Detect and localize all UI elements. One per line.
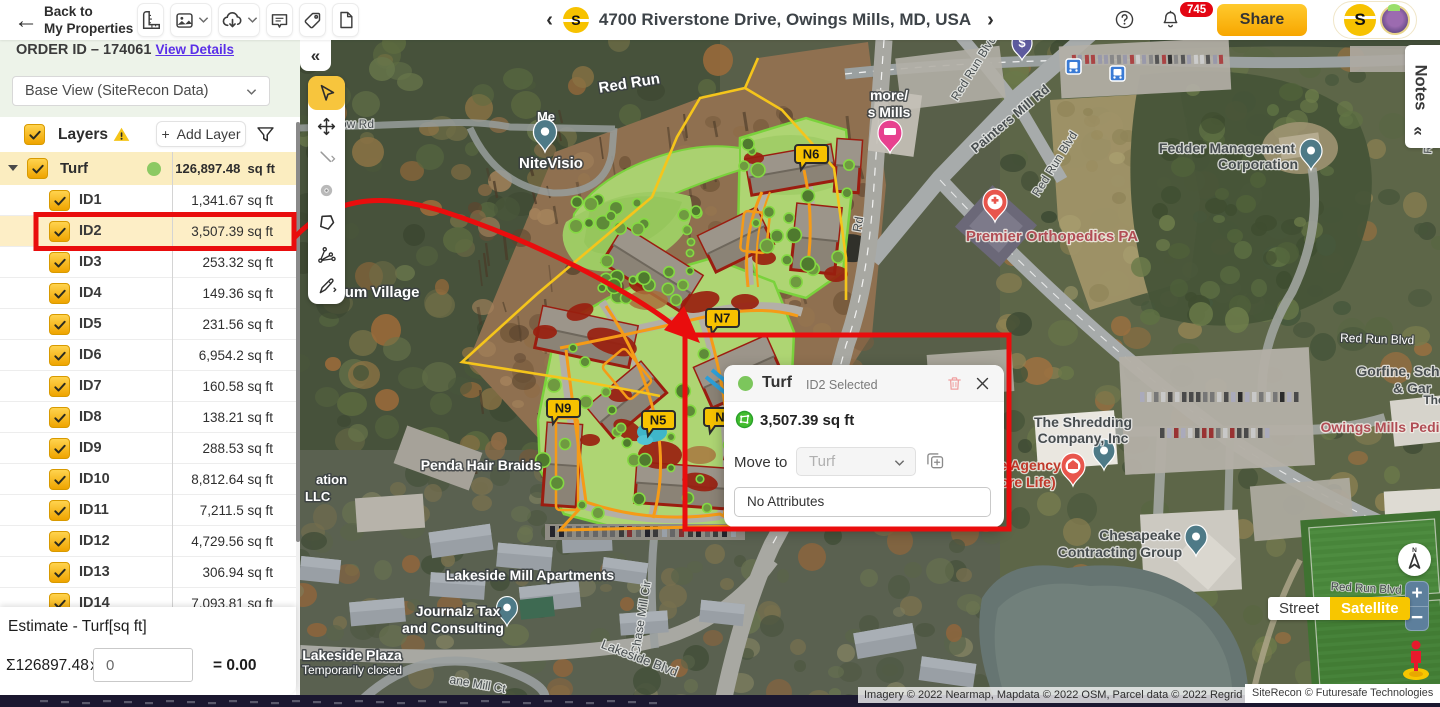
svg-text:ore Life): ore Life)	[1000, 474, 1055, 490]
svg-text:LLC: LLC	[305, 489, 331, 504]
svg-text:Gorfine, Sch: Gorfine, Sch	[1356, 363, 1439, 379]
svg-text:Rd: Rd	[850, 216, 866, 234]
svg-text:NiteVisio: NiteVisio	[519, 155, 583, 172]
svg-text:Company, Inc: Company, Inc	[1038, 430, 1129, 446]
svg-text:The: The	[1423, 393, 1440, 407]
svg-text:Lakeside Mill Apartments: Lakeside Mill Apartments	[446, 567, 615, 583]
svg-text:N7: N7	[714, 311, 731, 326]
svg-text:N6: N6	[803, 147, 820, 162]
svg-text:Penda Hair Braids: Penda Hair Braids	[421, 457, 542, 473]
svg-text:N: N	[1412, 547, 1417, 554]
svg-text:ium Village: ium Village	[341, 284, 420, 301]
svg-text:s Mills: s Mills	[868, 104, 911, 120]
svg-text:Premier Orthopedics PA: Premier Orthopedics PA	[966, 228, 1138, 245]
svg-text:ow Rd: ow Rd	[340, 117, 374, 131]
svg-text:Lakeside Plaza: Lakeside Plaza	[302, 647, 402, 663]
svg-text:N5: N5	[650, 413, 667, 428]
svg-text:Corporation: Corporation	[1218, 156, 1298, 172]
svg-text:Journalz Tax: Journalz Tax	[416, 603, 501, 619]
svg-text:more/: more/	[870, 87, 908, 103]
svg-text:e Agency: e Agency	[999, 457, 1061, 473]
svg-text:N9: N9	[555, 401, 572, 416]
svg-text:and Consulting: and Consulting	[402, 620, 504, 636]
svg-text:Owings Mills Pedi: Owings Mills Pedi	[1320, 419, 1439, 435]
svg-text:Chesapeake: Chesapeake	[1099, 527, 1181, 543]
svg-text:Fedder Management: Fedder Management	[1159, 140, 1295, 156]
svg-text:Red Run Blvd: Red Run Blvd	[1340, 331, 1414, 348]
svg-text:The Shredding: The Shredding	[1034, 414, 1132, 430]
svg-text:Temporarily closed: Temporarily closed	[302, 663, 402, 677]
svg-text:ation: ation	[316, 472, 347, 487]
svg-text:Contracting Group: Contracting Group	[1058, 544, 1182, 560]
